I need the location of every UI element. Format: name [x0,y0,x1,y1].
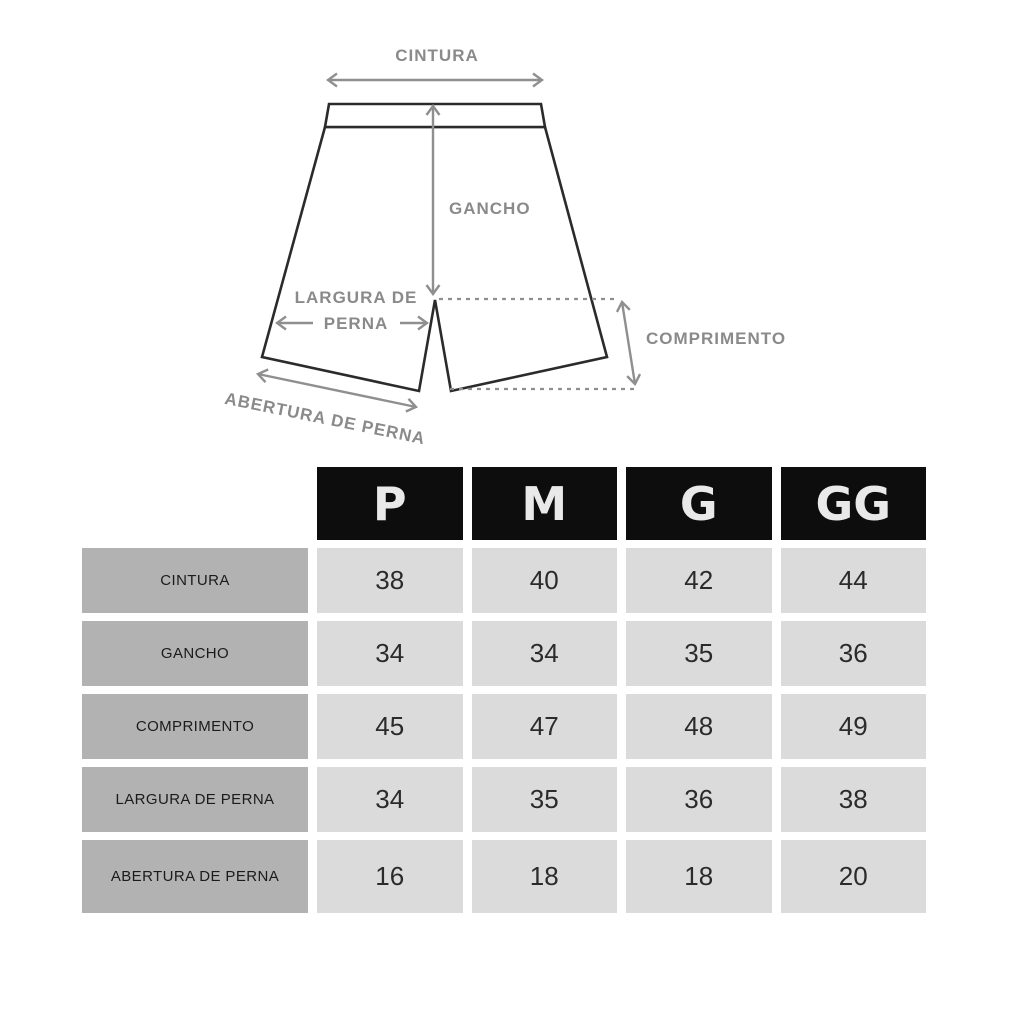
size-value-cell: 47 [472,694,618,759]
measurement-label-comprimento: COMPRIMENTO [82,694,308,759]
size-value-cell: 20 [781,840,927,913]
size-value-cell: 48 [626,694,772,759]
size-chart-page: CINTURA GANCHO LARGURA DE PERNA COMPRIME… [0,0,1024,1024]
size-value-cell: 35 [472,767,618,832]
measurement-label-cintura: CINTURA [82,548,308,613]
size-value-cell: 40 [472,548,618,613]
size-column-header-g: G [626,467,772,540]
size-value-cell: 34 [472,621,618,686]
size-value-cell: 35 [626,621,772,686]
shorts-measurement-diagram: CINTURA GANCHO LARGURA DE PERNA COMPRIME… [0,0,1024,460]
table-corner-spacer [82,467,308,540]
size-value-cell: 38 [317,548,463,613]
size-value-cell: 44 [781,548,927,613]
size-value-cell: 16 [317,840,463,913]
size-value-cell: 18 [472,840,618,913]
largura-label-line1: LARGURA DE [295,288,418,307]
measurement-label-abertura-de-perna: ABERTURA DE PERNA [82,840,308,913]
size-value-cell: 34 [317,621,463,686]
measurement-label-largura-de-perna: LARGURA DE PERNA [82,767,308,832]
measurement-label-gancho: GANCHO [82,621,308,686]
size-column-header-p: P [317,467,463,540]
comprimento-label: COMPRIMENTO [646,329,786,348]
comprimento-arrow [622,302,635,384]
size-column-header-m: M [472,467,618,540]
gancho-label: GANCHO [449,199,531,218]
abertura-label: ABERTURA DE PERNA [223,389,427,448]
shorts-waistband [325,104,545,127]
size-value-cell: 49 [781,694,927,759]
size-value-cell: 36 [626,767,772,832]
size-table: P M G GG CINTURA 38 40 42 44 GANCHO 34 3… [82,467,926,913]
size-value-cell: 36 [781,621,927,686]
shorts-outline [262,127,607,391]
size-column-header-gg: GG [781,467,927,540]
size-value-cell: 45 [317,694,463,759]
largura-label-line2: PERNA [324,314,389,333]
size-value-cell: 18 [626,840,772,913]
cintura-label: CINTURA [395,46,479,65]
size-value-cell: 34 [317,767,463,832]
size-value-cell: 38 [781,767,927,832]
size-value-cell: 42 [626,548,772,613]
